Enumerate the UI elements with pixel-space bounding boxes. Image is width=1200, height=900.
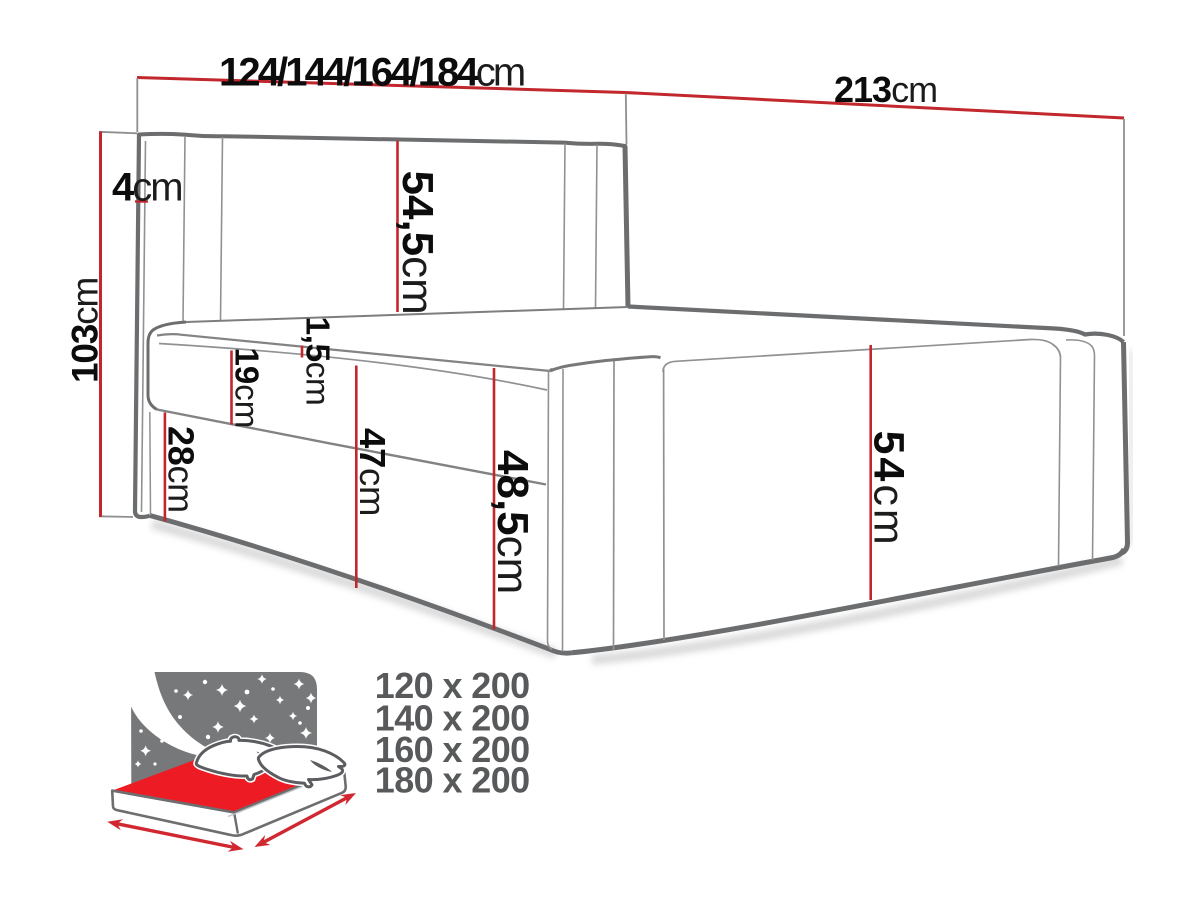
svg-text:4cm: 4cm <box>112 166 182 210</box>
svg-text:213cm: 213cm <box>834 69 937 110</box>
svg-text:28cm: 28cm <box>161 426 202 513</box>
svg-text:54cm: 54cm <box>865 431 913 548</box>
svg-text:19cm: 19cm <box>229 348 266 429</box>
svg-text:48,5cm: 48,5cm <box>488 450 537 594</box>
svg-text:180 x 200: 180 x 200 <box>375 760 530 801</box>
svg-text:54,5cm: 54,5cm <box>393 171 442 315</box>
svg-text:1,5cm: 1,5cm <box>299 317 336 406</box>
svg-text:47cm: 47cm <box>352 428 393 516</box>
svg-text:103cm: 103cm <box>65 278 106 383</box>
svg-text:124/144/164/184cm: 124/144/164/184cm <box>219 51 524 95</box>
